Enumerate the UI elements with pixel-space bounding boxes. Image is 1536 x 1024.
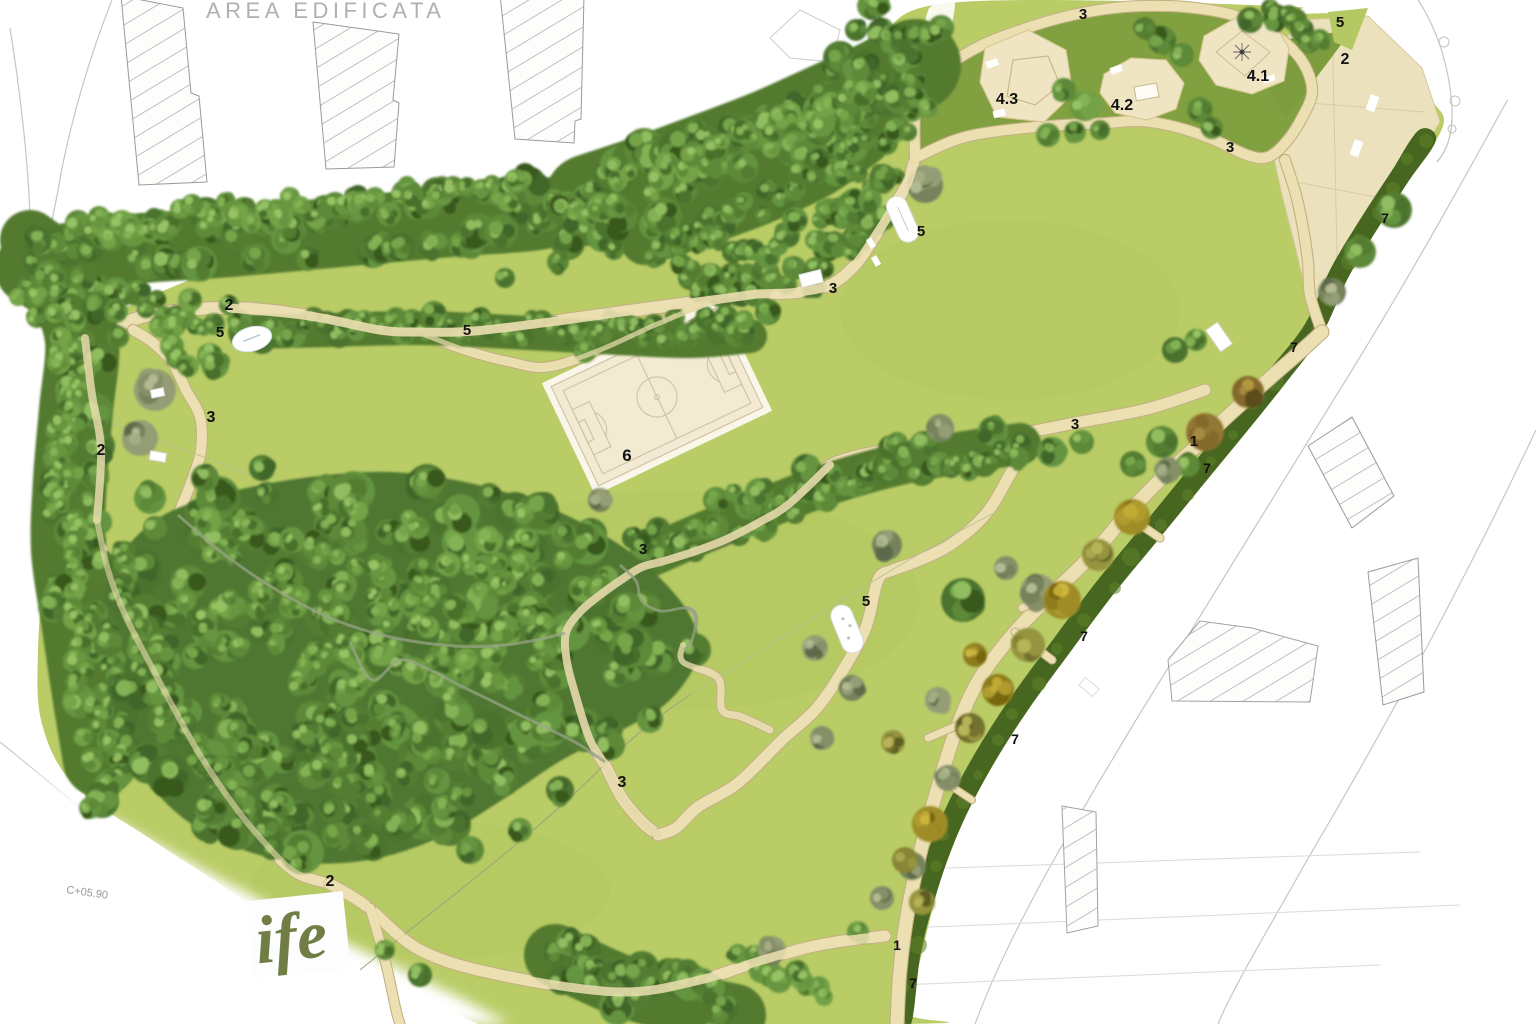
svg-text:AREA EDIFICATA: AREA EDIFICATA (206, 0, 445, 23)
